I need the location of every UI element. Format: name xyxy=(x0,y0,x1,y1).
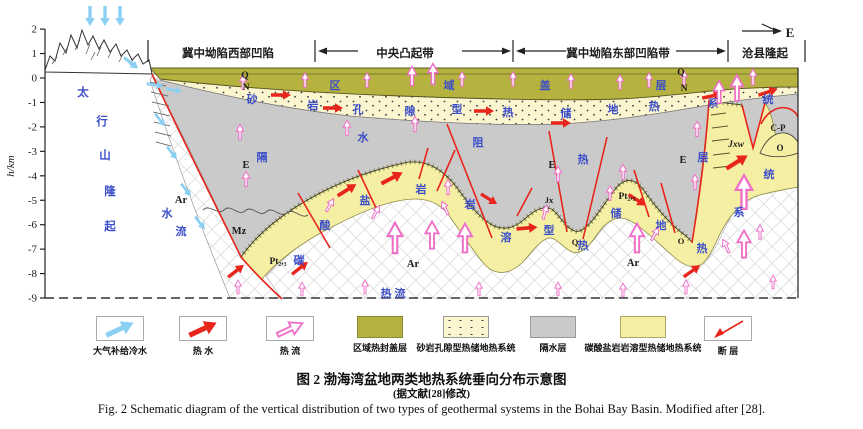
diagram-label-cap-layer: 盖 xyxy=(540,78,551,92)
axis-tick-label: -9 xyxy=(28,293,38,305)
diagram-label-west: 流 xyxy=(176,224,187,238)
diagram-label-sandstone: 地 xyxy=(608,102,619,116)
diagram-label-strat: N xyxy=(681,84,688,94)
diagram-label-aquitard: 热 xyxy=(578,152,589,166)
diagram-label-cap-layer: 区 xyxy=(330,79,341,92)
diagram-label-carbonate: 盐 xyxy=(360,193,371,207)
diagram-label-sandstone: 孔 xyxy=(353,103,364,116)
diagram-label-carbonate: 碳 xyxy=(294,253,306,267)
cold-arrow xyxy=(100,6,110,26)
east-direction-arrow xyxy=(742,24,782,35)
diagram-label-carbonate: 岩 xyxy=(464,197,476,211)
figure-2-geothermal-cross-section: 210-1-2-3-4-5-6-7-8-9h/km 冀中坳陷西部凹陷中央凸起带冀… xyxy=(0,0,863,429)
diagram-label-strat: Jx xyxy=(545,195,554,205)
legend-label: 断 层 xyxy=(658,344,798,357)
diagram-label-aquitard: 水 xyxy=(358,130,370,144)
axis-tick-label: -8 xyxy=(28,268,38,280)
diagram-label-aquitard: 隔 xyxy=(257,150,268,164)
diagram-label-carbonate: 热 xyxy=(697,241,708,255)
diagram-label-carbonate: 热 xyxy=(578,238,589,252)
axis-tick-label: -4 xyxy=(28,170,38,182)
axis-tick-label: -1 xyxy=(28,97,37,109)
diagram-label-strat: Pt₂,₃ xyxy=(618,192,635,202)
diagram-label-strat: Q xyxy=(572,237,579,247)
diagram-label-carbonate: 酸 xyxy=(320,218,332,232)
diagram-label-aquitard: 阻 xyxy=(473,135,484,149)
caption-english: Fig. 2 Schematic diagram of the vertical… xyxy=(0,402,863,417)
fault-line-icon xyxy=(704,316,752,341)
axis-unit-label: h/km xyxy=(5,155,17,176)
legend-item-fault: 断 层 xyxy=(658,316,798,357)
diagram-label-strat: E xyxy=(679,155,686,166)
axis-tick-label: -3 xyxy=(28,146,38,158)
diagram-label-mountain: 山 xyxy=(99,148,111,162)
diagram-label-sandstone: 热 xyxy=(503,105,514,119)
diagram-label-sandstone: 储 xyxy=(561,106,572,120)
axis-tick-label: -2 xyxy=(28,121,37,133)
axis-tick-label: -5 xyxy=(28,195,38,207)
diagram-label-mountain: 行 xyxy=(95,114,108,128)
diagram-label-carbonate: 储 xyxy=(611,206,622,220)
diagram-label-cap-layer: 层 xyxy=(655,79,667,92)
diagram-label-carbonate: 统 xyxy=(764,167,775,181)
gray-swatch xyxy=(530,316,576,338)
diagram-label-strat: Ar xyxy=(407,259,420,270)
diagram-label-mountain: 隆 xyxy=(104,184,116,198)
diagram-label-header: 沧县隆起 xyxy=(742,46,788,60)
diagram-label-carbonate: 地 xyxy=(656,218,667,232)
axis-tick-label: 2 xyxy=(32,24,38,36)
diagram-label-sandstone: 统 xyxy=(763,92,774,106)
diagram-label-sandstone: 系 xyxy=(708,96,719,110)
diagram-label-strat: Ar xyxy=(627,258,640,269)
diagram-label-header: E xyxy=(786,25,795,40)
diagram-label-strat: E xyxy=(242,160,249,171)
diagram-label-carbonate: 岩 xyxy=(415,182,427,196)
diagram-label-header: 中央凸起带 xyxy=(376,46,434,60)
diagram-label-basement: 热 流 xyxy=(380,286,405,300)
heat-flow-arrow-icon xyxy=(266,316,314,341)
diagram-label-strat: Jxw xyxy=(727,140,745,150)
diagram-label-strat: N xyxy=(243,83,250,93)
diagram-label-aquitard: 层 xyxy=(697,151,709,164)
caption-chinese: 图 2 渤海湾盆地两类地热系统垂向分布示意图 xyxy=(0,368,863,388)
diagram-label-cap-layer: 域 xyxy=(444,78,455,92)
axis-tick-label: -6 xyxy=(28,219,38,231)
diagram-label-strat: Q xyxy=(677,68,684,78)
diagram-label-strat: Pt₂,₃ xyxy=(269,257,286,267)
diagram-label-header: 冀中坳陷西部凹陷 xyxy=(182,46,274,60)
diagram-label-west: 水 xyxy=(162,206,174,220)
diagram-label-strat: O xyxy=(776,143,783,153)
axis-tick-label: -7 xyxy=(28,244,38,256)
diagram-label-strat: O xyxy=(678,236,685,246)
diagram-label-strat: Q xyxy=(241,71,248,81)
caption-reference-note: (据文献[28]修改) xyxy=(0,386,863,401)
diagram-label-mountain: 太 xyxy=(76,85,89,99)
diagram-label-sandstone: 热 xyxy=(649,99,660,113)
diagram-label-carbonate: 型 xyxy=(544,223,555,237)
diagram-label-carbonate: 溶 xyxy=(501,230,512,244)
cold-arrow xyxy=(85,6,95,26)
diagram-label-sandstone: 型 xyxy=(452,102,463,116)
axis-tick-label: 0 xyxy=(32,73,38,85)
cross-section-svg: 210-1-2-3-4-5-6-7-8-9h/km 冀中坳陷西部凹陷中央凸起带冀… xyxy=(0,0,863,312)
axis-tick-label: 1 xyxy=(32,48,38,60)
diagram-label-strat: Mz xyxy=(232,226,247,237)
diagram-label-sandstone: 砂 xyxy=(247,92,258,106)
diagram-label-strat: Ar xyxy=(175,195,188,206)
diagram-label-header: 冀中坳陷东部凹陷带 xyxy=(566,46,670,60)
diagram-label-sandstone: 岩 xyxy=(307,98,319,112)
cold-arrow xyxy=(115,6,125,26)
diagram-label-mountain: 起 xyxy=(103,219,116,233)
diagram-label-sandstone: 隙 xyxy=(405,104,416,118)
diagram-label-strat: E xyxy=(548,160,555,171)
diagram-label-carbonate: 系 xyxy=(734,205,745,219)
diagram-label-strat: C-P xyxy=(771,123,786,133)
y-axis: 210-1-2-3-4-5-6-7-8-9h/km xyxy=(5,24,45,305)
